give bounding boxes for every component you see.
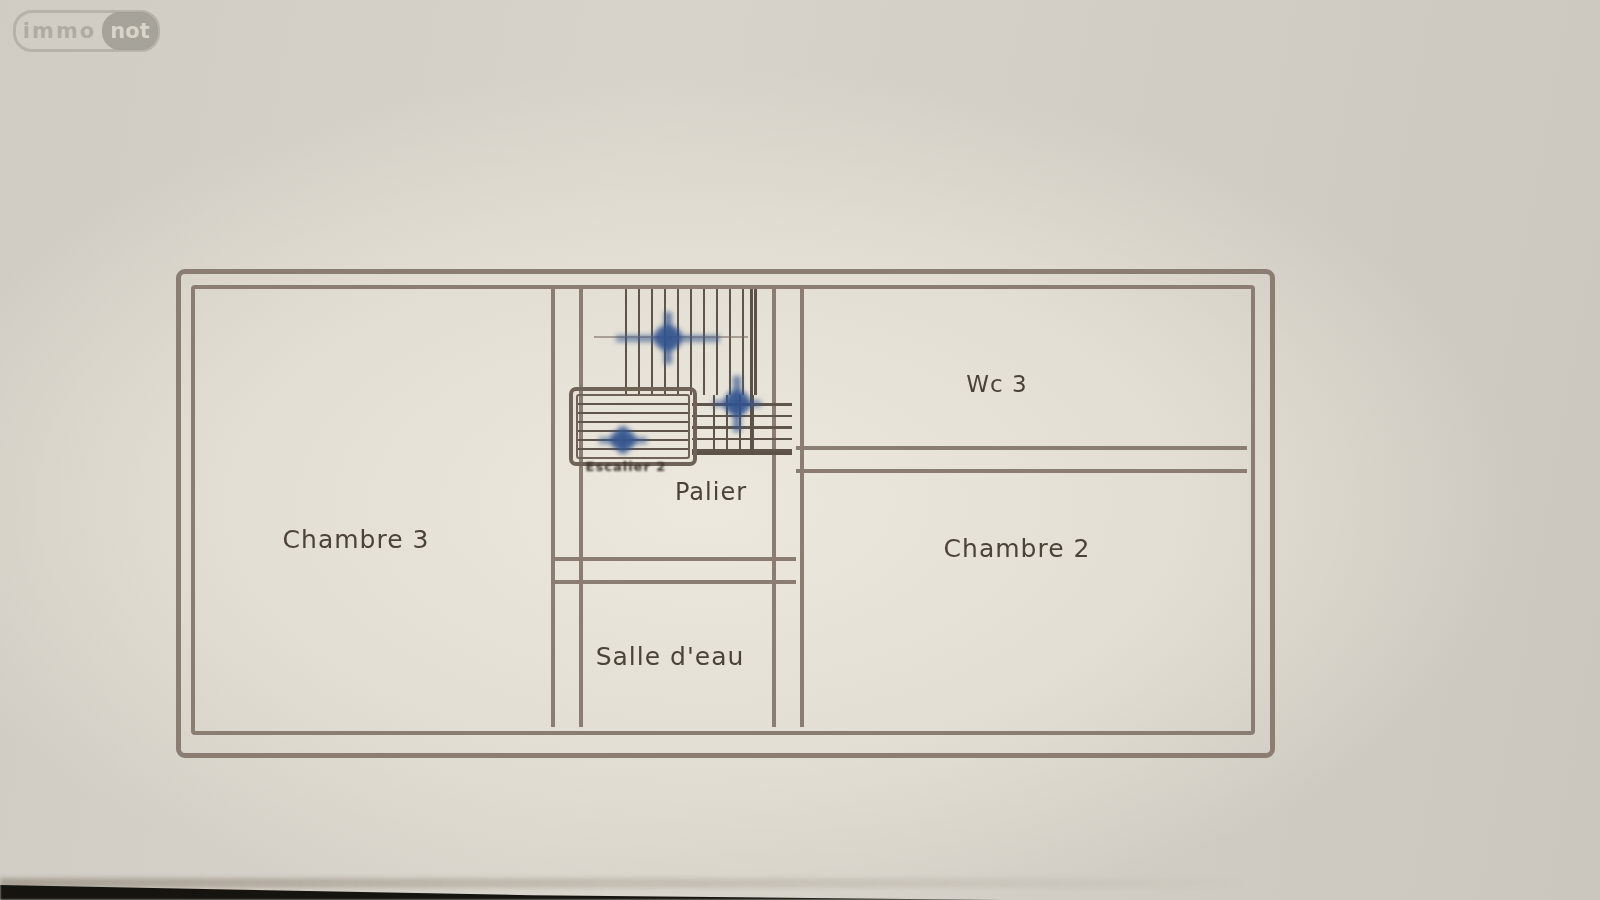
room-label-chambre3: Chambre 3: [283, 525, 430, 554]
room-label-wc3: Wc 3: [966, 371, 1027, 397]
room-label-chambre2: Chambre 2: [944, 534, 1091, 563]
wall-wc3-chambre2: [796, 446, 1247, 473]
wall-chambre3-stairs: [551, 285, 583, 727]
floor-plan-drawing: [0, 0, 1600, 900]
floor-plan-photo: immo not Chambre 3 Wc 3 Cham: [0, 0, 1600, 900]
stair-lower-flight-treads: [576, 394, 690, 459]
stair-lower-flight-box: [569, 387, 697, 466]
room-label-salle-deau: Salle d'eau: [596, 642, 745, 671]
room-label-palier: Palier: [675, 478, 747, 506]
paper-edge-tint: [0, 878, 1250, 888]
stair-stringer-line: [750, 289, 753, 452]
wall-stairs-chambre2: [772, 285, 804, 727]
wall-palier-salledeau: [551, 557, 796, 584]
room-label-escalier2: Escalier 2: [586, 459, 667, 474]
